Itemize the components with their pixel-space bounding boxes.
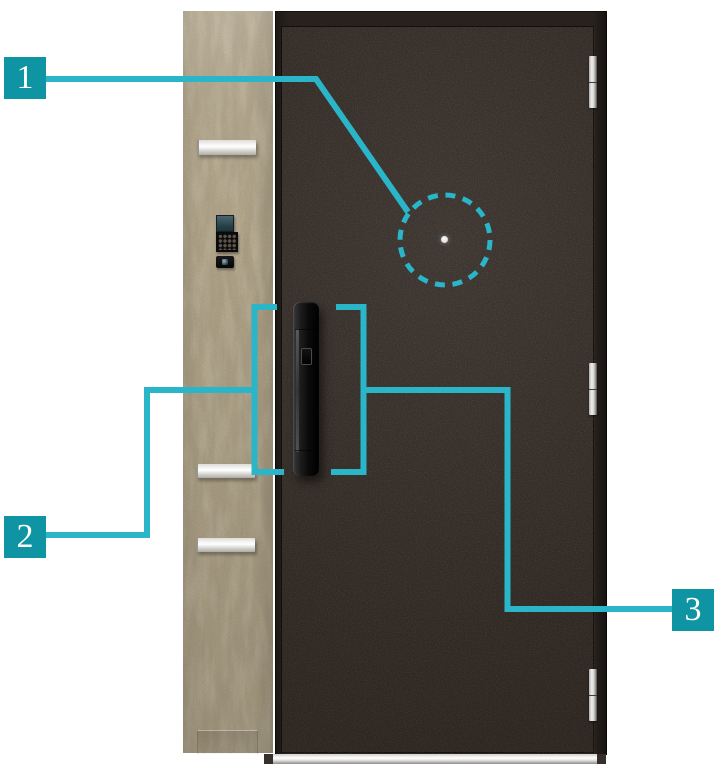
wood-lighting-overlay: [183, 11, 273, 753]
intercom-camera-lens: [222, 259, 228, 265]
callout-label-2: 2: [4, 516, 46, 558]
handle-lock-button: [301, 348, 312, 365]
callout-label-3: 3: [672, 589, 714, 631]
metal-strip-top: [197, 140, 256, 155]
peephole-viewer: [441, 236, 448, 243]
callout-label-1: 1: [4, 57, 46, 99]
keypad-buttons: [218, 234, 236, 250]
metal-strip-lower: [196, 538, 255, 552]
wood-side-panel: [183, 11, 273, 753]
door-threshold: [264, 754, 606, 764]
door-handle: [293, 302, 319, 476]
door-feature-diagram: 1 2 3: [0, 0, 718, 768]
intercom-screen: [216, 215, 234, 232]
hinge-top: [589, 56, 597, 108]
door-leaf: [281, 26, 594, 753]
hinge-middle: [589, 363, 597, 415]
metal-strip-middle: [196, 464, 255, 478]
panel-bottom-plinth: [197, 730, 258, 754]
door-lighting-overlay: [282, 27, 593, 752]
intercom-speaker: [216, 256, 234, 268]
intercom-keypad: [216, 232, 238, 252]
hinge-bottom: [589, 669, 597, 721]
